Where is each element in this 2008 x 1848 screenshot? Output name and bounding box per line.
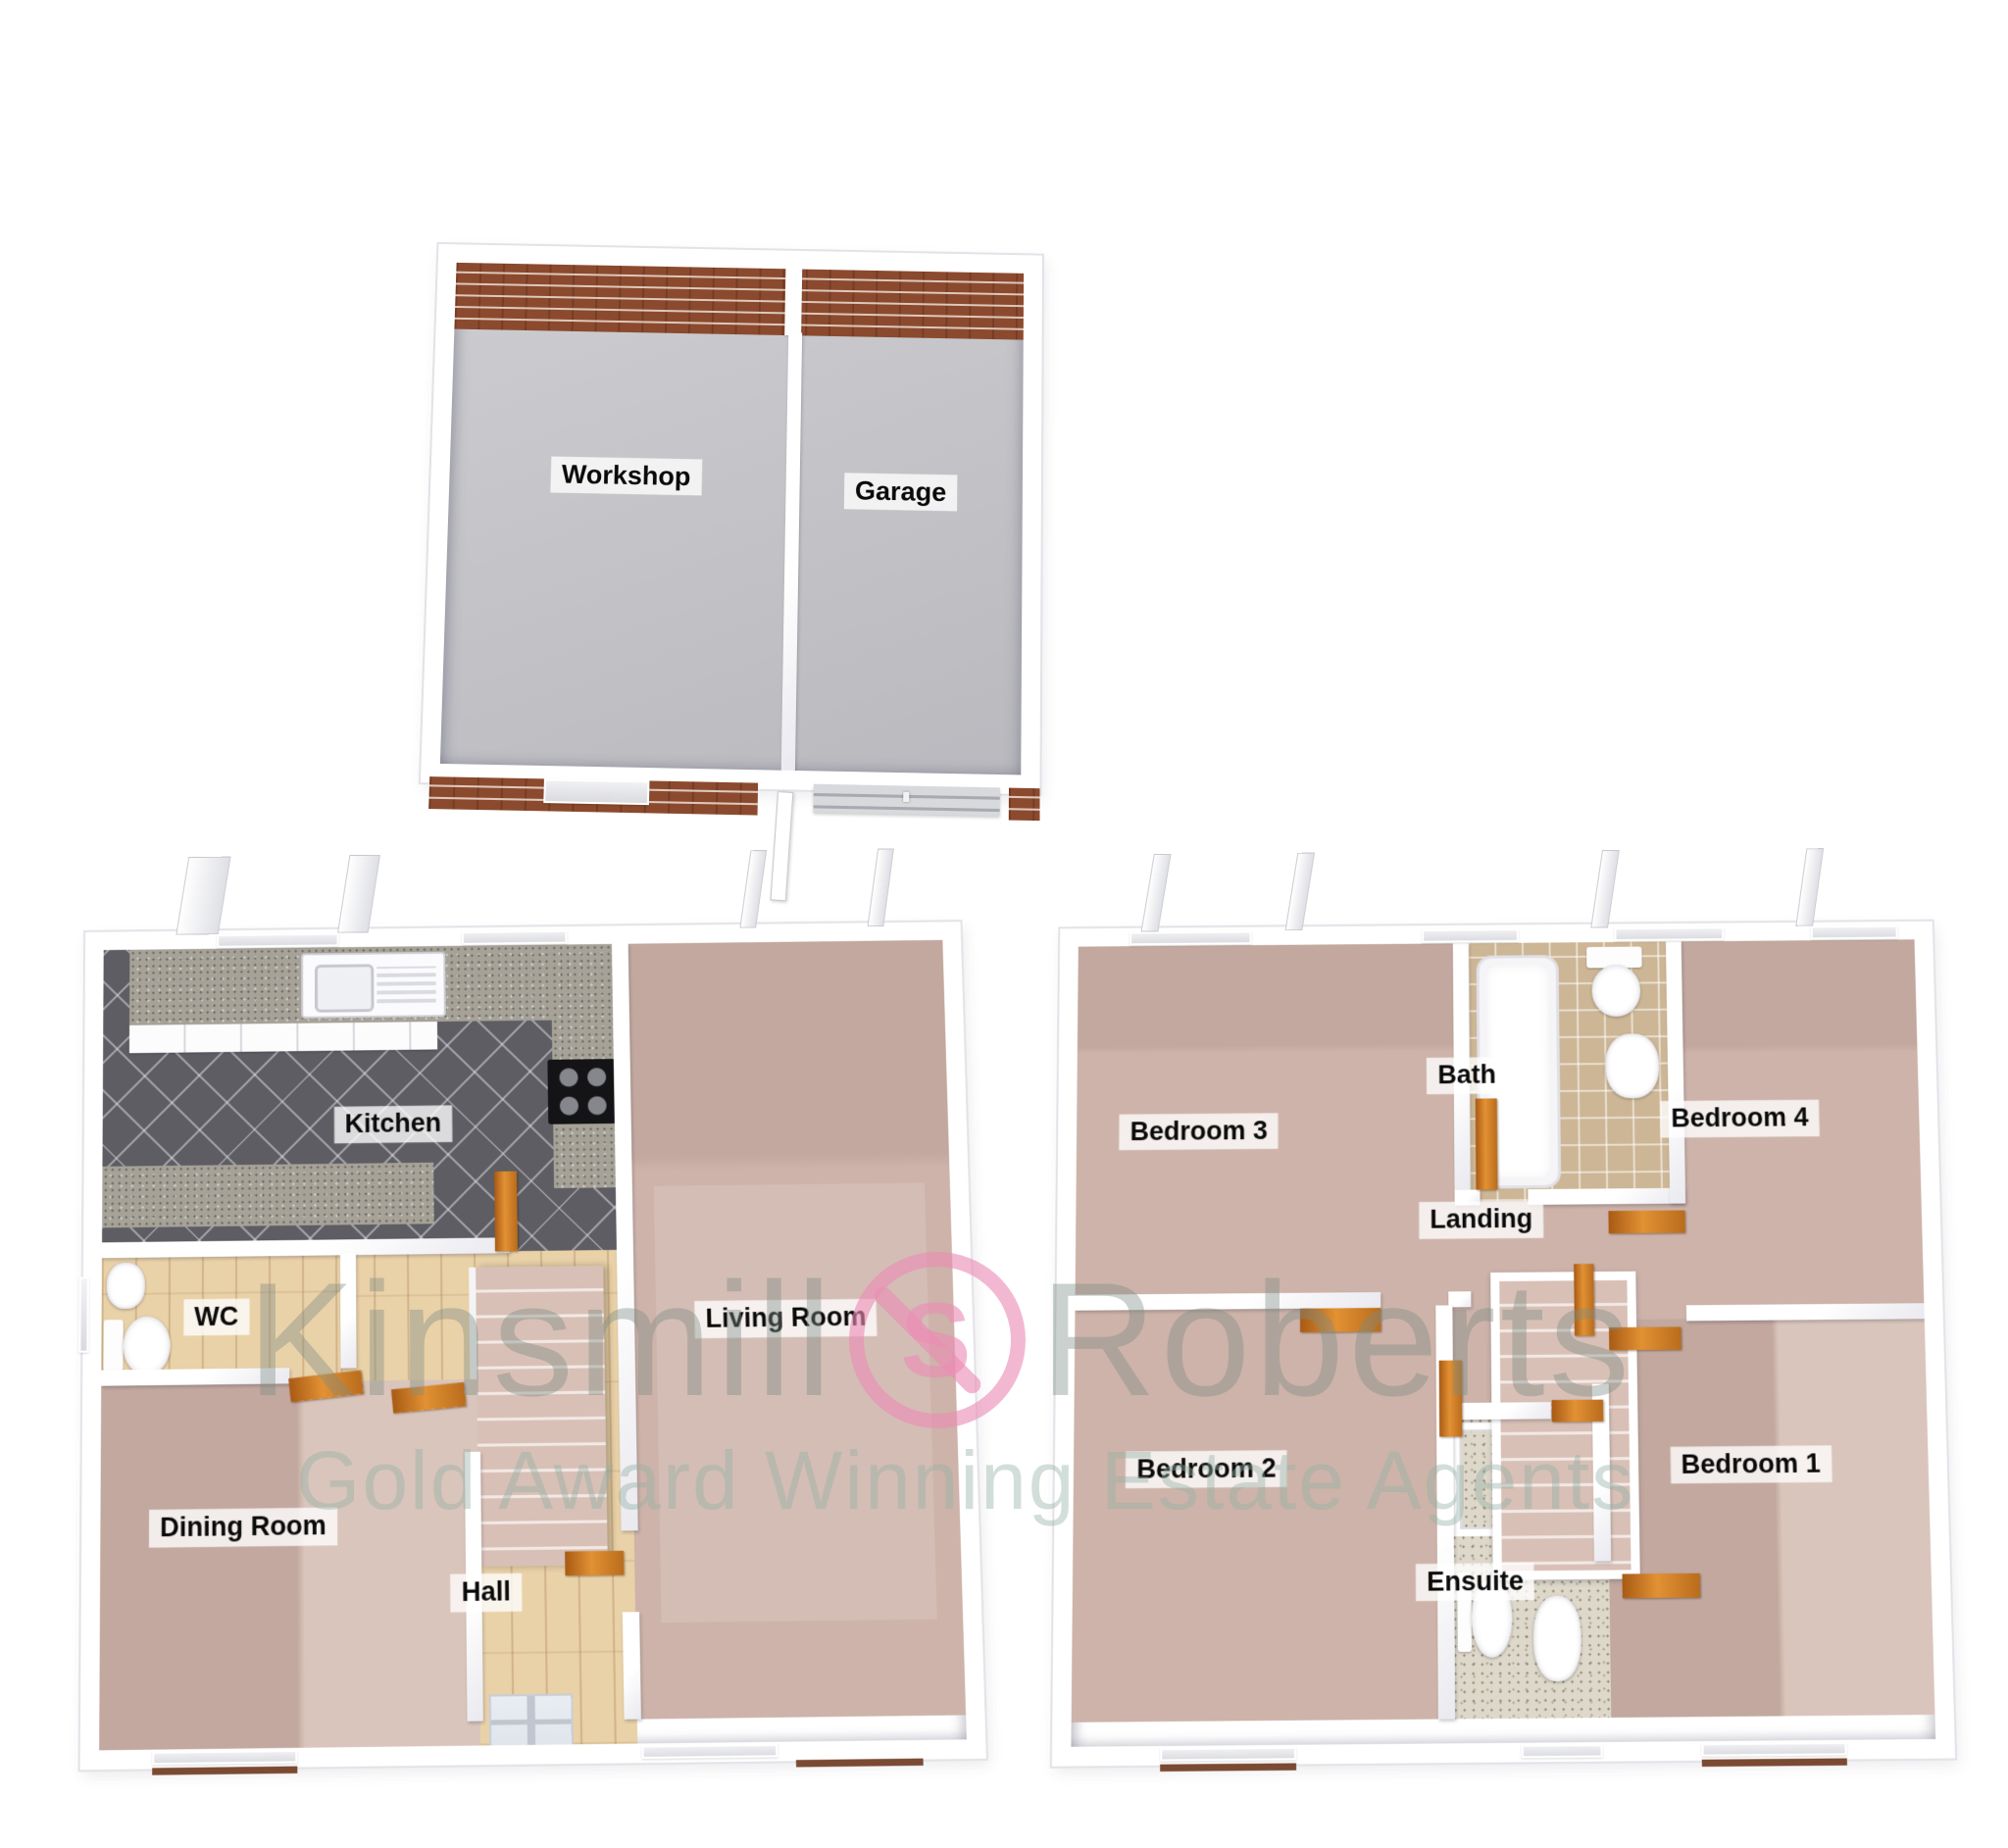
open-window-fin [1141, 854, 1172, 932]
room-label-bedroom4: Bedroom 4 [1660, 1100, 1820, 1138]
garage-corner-brick [1009, 788, 1040, 822]
bath-basin [1605, 1034, 1660, 1099]
wc-toilet [123, 1316, 171, 1375]
room-label-living: Living Room [694, 1299, 878, 1338]
room-label-wc: WC [183, 1298, 249, 1336]
bedroom1-window [1702, 1742, 1847, 1757]
wc-window [78, 1276, 89, 1352]
bedroom3-window [1129, 931, 1252, 946]
bedroom4-window-2 [1810, 925, 1897, 939]
wall-wc-right [340, 1253, 357, 1369]
dining-window-sill [153, 1767, 298, 1775]
room-label-ensuite: Ensuite [1416, 1563, 1534, 1602]
open-window-fin [176, 857, 230, 935]
garage-door-handle [903, 792, 909, 802]
room-label-kitchen: Kitchen [334, 1105, 453, 1143]
open-window-fin [740, 850, 768, 928]
open-window-fin [1285, 853, 1315, 931]
workshop-window [544, 778, 650, 805]
floorplan-image: Workshop Garage [0, 0, 2008, 1848]
wall-ensuite-top [1453, 1403, 1551, 1420]
dining-room [99, 1379, 480, 1751]
room-label-bedroom1: Bedroom 1 [1670, 1445, 1832, 1484]
stair-newel-post [1574, 1264, 1594, 1335]
kitchen-window [217, 933, 339, 948]
ensuite-basin [1533, 1596, 1582, 1681]
ground-floor-plan: Kitchen WC Dining Room Hall Living Room [80, 922, 986, 1770]
room-label-bedroom3: Bedroom 3 [1120, 1113, 1279, 1151]
kitchen-cabinets [129, 1022, 437, 1053]
wall-bath-bottom [1529, 1187, 1685, 1205]
kitchen-sink [301, 952, 446, 1018]
room-label-dining: Dining Room [149, 1508, 337, 1548]
room-label-hall: Hall [450, 1573, 522, 1613]
first-floor-plan: Bedroom 3 Bath Bedroom 4 Landing Bedroom… [1052, 922, 1955, 1767]
wc-basin [107, 1263, 145, 1309]
living-window-sill [796, 1759, 924, 1768]
ground-floor [99, 940, 967, 1751]
open-window-fin [337, 855, 380, 933]
staircase [476, 1266, 607, 1567]
bedroom1-window-sill [1702, 1758, 1847, 1767]
bedroom2-room [1072, 1305, 1452, 1723]
outbuilding-floor [440, 263, 1024, 775]
bedroom2-door [1300, 1308, 1380, 1331]
living-room-carpet-patch [654, 1182, 937, 1623]
bedroom1-room [1606, 1317, 1935, 1718]
bath-window [1422, 928, 1518, 942]
room-label-landing: Landing [1419, 1201, 1543, 1239]
bath-toilet [1591, 965, 1641, 1017]
bedroom2-window [1160, 1747, 1295, 1762]
bedroom2-window-sill [1160, 1763, 1295, 1772]
bedroom4-window [1614, 926, 1723, 941]
room-label-bedroom2: Bedroom 2 [1126, 1450, 1287, 1489]
workshop-garage-divider-wall [781, 332, 802, 771]
hall-top-window [462, 930, 567, 945]
room-label-workshop: Workshop [550, 456, 701, 496]
front-door [489, 1694, 574, 1750]
wall-bed4-bed1 [1686, 1303, 1925, 1321]
kitchen-counter-left [102, 1163, 433, 1228]
workshop-north-brick-wall [454, 263, 1024, 340]
dining-window [153, 1750, 298, 1765]
living-room-door [565, 1551, 624, 1575]
bedroom1-door [1609, 1326, 1682, 1350]
kitchen-room [102, 944, 628, 1256]
open-window-fin [867, 849, 893, 927]
ensuite-door [1551, 1400, 1602, 1423]
room-label-bath: Bath [1427, 1057, 1507, 1094]
open-window-fin [1590, 850, 1619, 928]
bedroom3-door [1438, 1361, 1462, 1437]
open-window-fin [1795, 848, 1824, 926]
outbuilding-plan: Workshop Garage [421, 244, 1042, 794]
bath-door [1475, 1099, 1497, 1189]
stairwell [1491, 1272, 1640, 1580]
room-label-garage: Garage [844, 473, 958, 512]
wall-wc-dining [101, 1368, 289, 1386]
brick-wall-gap [784, 269, 803, 335]
outbuilding-open-door [770, 791, 793, 902]
wc-toilet-cistern [104, 1320, 124, 1371]
bedroom4-door [1609, 1210, 1685, 1233]
wall-living-left-lower [623, 1612, 641, 1719]
hob-icon [547, 1059, 619, 1124]
living-window [641, 1744, 778, 1759]
ensuite-window [1522, 1744, 1603, 1758]
bedroom1-threshold [1622, 1573, 1699, 1598]
kitchen-door [494, 1172, 517, 1251]
